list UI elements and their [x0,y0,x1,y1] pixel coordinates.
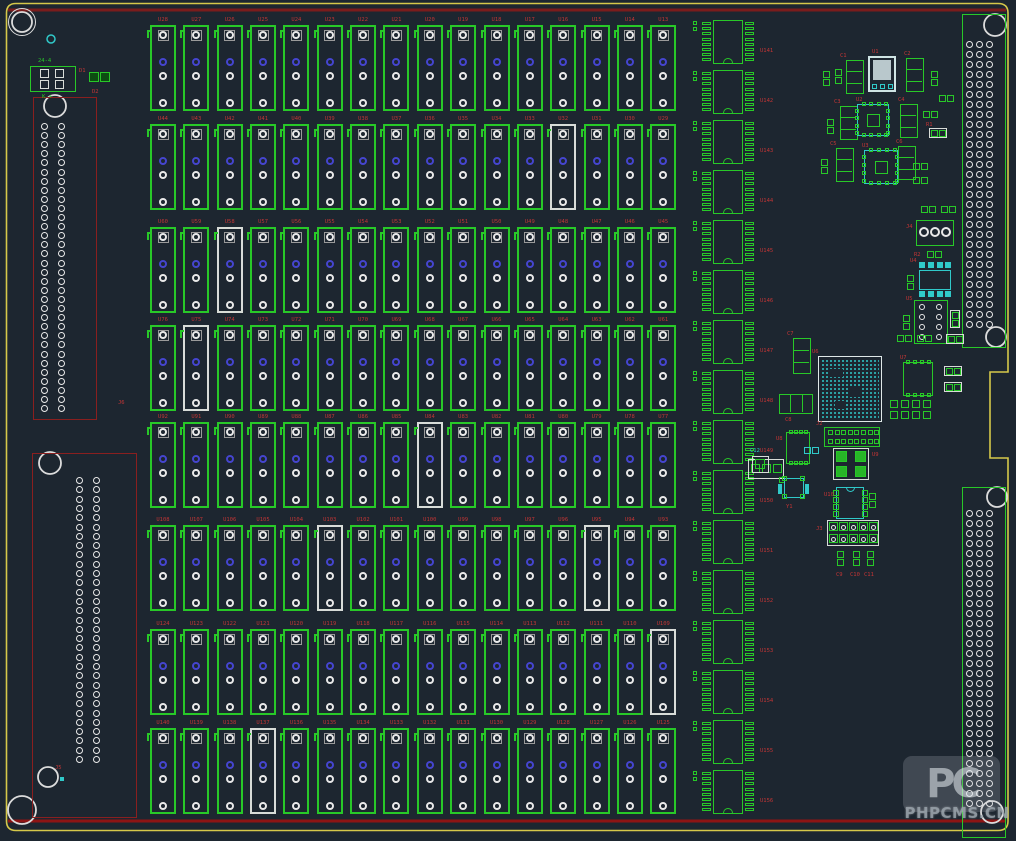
relay-footprint[interactable] [350,25,376,111]
relay-footprint[interactable] [350,525,376,611]
ic-footprint[interactable] [700,420,758,464]
pad-hole [966,740,973,747]
relay-footprint[interactable] [417,124,443,210]
relay-footprint[interactable] [250,629,276,715]
pad-hole [392,455,400,463]
chip-component[interactable] [926,250,944,260]
relay-footprint[interactable] [417,728,443,814]
relay-footprint[interactable] [183,124,209,210]
connector-footprint[interactable] [824,427,880,447]
pad-hole [659,260,667,268]
chip-component[interactable] [944,366,962,376]
pin1-mark-icon [147,232,151,240]
pad-hole [976,530,983,537]
pad-smd [693,571,697,575]
pad-hole [559,358,567,366]
crystal-footprint[interactable] [784,478,804,498]
relay-footprint[interactable] [383,728,409,814]
relay-footprint[interactable] [484,629,510,715]
relay-footprint[interactable] [217,124,243,210]
pad-hole [986,141,993,148]
relay-footprint[interactable] [617,124,643,210]
relay-footprint[interactable] [450,325,476,411]
pad-hole [659,761,667,769]
relay-designator: U129 [514,720,546,726]
pad-hole [526,428,534,436]
ic-footprint[interactable] [700,220,758,264]
relay-footprint[interactable] [550,422,576,508]
ic-footprint[interactable] [700,270,758,314]
soic8-footprint[interactable] [918,262,954,298]
relay-footprint[interactable] [417,325,443,411]
chip-component[interactable] [930,70,940,88]
pad-hole [593,301,601,309]
pad-hole [966,221,973,228]
relay-footprint[interactable] [617,422,643,508]
pin1-mark-icon [314,129,318,137]
pin1-mark-icon [614,733,618,741]
pad-hole [966,241,973,248]
relay-footprint[interactable] [617,227,643,313]
pad-hole [526,274,534,282]
ic-footprint[interactable] [700,20,758,64]
relay-designator: U113 [514,621,546,627]
relay-footprint[interactable] [417,25,443,111]
pad-hole [459,99,467,107]
relay-footprint[interactable] [450,25,476,111]
relay-footprint[interactable] [517,629,543,715]
opto-footprint[interactable] [833,448,869,480]
relay-footprint[interactable] [217,227,243,313]
relay-footprint[interactable] [617,629,643,715]
pad-hole [966,640,973,647]
relay-footprint[interactable] [317,422,343,508]
relay-footprint[interactable] [183,25,209,111]
ic-pad [702,258,711,261]
pad-smd [862,155,866,159]
ic-pad [702,303,711,306]
relay-footprint[interactable] [150,422,176,508]
pad-hole [226,558,234,566]
shape [841,117,856,118]
qfn-footprint[interactable] [864,150,898,184]
pad-smd [869,148,873,152]
pad-smd [928,262,934,268]
power-header-footprint[interactable] [30,66,76,92]
capacitor-footprint[interactable] [900,104,918,138]
chip-component[interactable] [820,158,830,176]
relay-footprint[interactable] [350,325,376,411]
pad-smd [880,84,885,89]
relay-footprint[interactable] [584,227,610,313]
pad-hole [76,496,83,503]
relay-footprint[interactable] [250,325,276,411]
pad-smd [907,275,914,282]
pad-hole [93,617,100,624]
relay-footprint[interactable] [550,124,576,210]
relay-footprint[interactable] [517,25,543,111]
jumper-connector[interactable] [916,220,954,246]
shape [841,129,856,130]
relay-footprint[interactable] [584,325,610,411]
relay-footprint[interactable] [150,728,176,814]
relay-footprint[interactable] [250,25,276,111]
relay-footprint[interactable] [584,124,610,210]
pad-array[interactable] [890,400,934,422]
relay-footprint[interactable] [550,629,576,715]
pad-hole [526,72,534,80]
chip-component[interactable] [950,310,960,328]
relay-footprint[interactable] [183,629,209,715]
dip8-footprint[interactable] [836,487,864,519]
relay-footprint[interactable] [484,25,510,111]
relay-footprint[interactable] [617,728,643,814]
relay-footprint[interactable] [650,325,676,411]
relay-footprint[interactable] [283,525,309,611]
ic-footprint[interactable] [700,570,758,614]
relay-footprint[interactable] [283,728,309,814]
chip-component[interactable] [902,314,912,332]
pin1-mark-icon [414,634,418,642]
chip-component[interactable] [866,550,876,568]
ic-footprint[interactable] [700,520,758,564]
ic-pad [745,243,754,246]
relay-footprint[interactable] [183,325,209,411]
chip-component[interactable] [752,456,769,473]
relay-footprint[interactable] [317,525,343,611]
soic8-footprint[interactable] [903,362,933,396]
relay-footprint[interactable] [650,728,676,814]
chip-component[interactable] [938,94,956,104]
pad-hole [259,802,267,810]
pad-smd [869,133,873,137]
relay-footprint[interactable] [650,25,676,111]
pad-smd [835,69,842,76]
chip-component[interactable] [906,274,916,292]
ic-footprint[interactable] [700,770,758,814]
pad-hole [76,747,83,754]
relay-footprint[interactable] [517,124,543,210]
relay-footprint[interactable] [417,422,443,508]
pad-hole [459,496,467,504]
relay-footprint[interactable] [383,25,409,111]
pin1-mark-icon [581,427,585,435]
pad-hole [493,331,501,339]
ic-footprint[interactable] [700,620,758,664]
pad-hole [966,301,973,308]
relay-footprint[interactable] [217,25,243,111]
relay-footprint[interactable] [617,325,643,411]
relay-footprint[interactable] [217,422,243,508]
pad-hole [159,775,167,783]
relay-footprint[interactable] [317,728,343,814]
chip-component[interactable] [852,550,862,568]
relay-footprint[interactable] [517,525,543,611]
pad-hole [159,130,167,138]
ref-label: J3 [816,526,823,532]
relay-footprint[interactable] [250,124,276,210]
chip-component[interactable] [912,162,930,172]
ic-pad [702,422,711,425]
relay-footprint[interactable] [217,629,243,715]
pad-hole [359,358,367,366]
relay-footprint[interactable] [617,525,643,611]
pad-hole [919,304,925,310]
ic-designator: U143 [760,148,773,154]
ic-pad [745,543,754,546]
relay-footprint[interactable] [250,525,276,611]
edge-connector-left[interactable] [32,453,137,818]
relay-footprint[interactable] [383,422,409,508]
relay-footprint[interactable] [150,525,176,611]
ic-pad [702,732,711,735]
shape [901,115,916,116]
pin1-mark-icon [447,427,451,435]
relay-footprint[interactable] [350,629,376,715]
chip-component[interactable] [940,205,958,215]
ic-pad [745,148,754,151]
pad-smd [848,430,853,435]
pin1-mark-icon [214,330,218,338]
pad-hole [986,71,993,78]
chip-component[interactable] [822,70,832,88]
ic-pad [702,227,711,230]
pad-hole [226,662,234,670]
ic-pad [702,493,711,496]
relay-footprint[interactable] [650,227,676,313]
relay-footprint[interactable] [283,629,309,715]
pad-smd [913,360,917,364]
relay-footprint[interactable] [383,525,409,611]
relay-footprint[interactable] [550,525,576,611]
relay-footprint[interactable] [550,25,576,111]
pad-hole [76,570,83,577]
relay-footprint[interactable] [484,124,510,210]
ic-pad [702,548,711,551]
pin1-mark-icon [414,427,418,435]
relay-footprint[interactable] [217,525,243,611]
relay-footprint[interactable] [584,728,610,814]
ic-footprint[interactable] [700,720,758,764]
ic-footprint[interactable] [700,320,758,364]
ic-footprint[interactable] [700,370,758,414]
relay-footprint[interactable] [484,227,510,313]
relay-footprint[interactable] [217,728,243,814]
relay-footprint[interactable] [584,629,610,715]
ic-pad [745,143,754,146]
relay-footprint[interactable] [383,227,409,313]
relay-footprint[interactable] [150,629,176,715]
pad-hole [93,663,100,670]
relay-footprint[interactable] [250,227,276,313]
relay-footprint[interactable] [283,124,309,210]
relay-footprint[interactable] [517,325,543,411]
pad-hole [359,198,367,206]
relay-footprint[interactable] [450,629,476,715]
relay-footprint[interactable] [150,124,176,210]
relay-footprint[interactable] [417,525,443,611]
relay-footprint[interactable] [417,227,443,313]
ref-label: U5 [906,296,913,302]
relay-footprint[interactable] [584,25,610,111]
relay-footprint[interactable] [317,124,343,210]
pin1-mark-icon [447,30,451,38]
relay-footprint[interactable] [584,525,610,611]
relay-footprint[interactable] [617,25,643,111]
pad-hole [986,680,993,687]
relay-footprint[interactable] [350,728,376,814]
pad-hole [392,372,400,380]
pad-smd [848,439,853,444]
relay-designator: U95 [581,517,613,523]
pad-hole [831,525,836,530]
relay-footprint[interactable] [317,25,343,111]
ic-pad [745,677,754,680]
relay-footprint[interactable] [517,227,543,313]
regulator-footprint[interactable] [868,56,896,92]
relay-footprint[interactable] [283,25,309,111]
relay-footprint[interactable] [584,422,610,508]
pad-hole [593,455,601,463]
ic-pad [702,438,711,441]
relay-footprint[interactable] [383,325,409,411]
ic-pad [745,572,754,575]
relay-footprint[interactable] [450,227,476,313]
pad-hole [76,691,83,698]
relay-footprint[interactable] [650,422,676,508]
relay-footprint[interactable] [550,227,576,313]
ic-footprint[interactable] [700,120,758,164]
relay-footprint[interactable] [150,25,176,111]
chip-component[interactable] [920,205,938,215]
ic-pad [745,58,754,61]
relay-footprint[interactable] [383,124,409,210]
relay-footprint[interactable] [283,227,309,313]
ic-pad [702,158,711,161]
relay-footprint[interactable] [484,422,510,508]
chip-component[interactable] [916,334,934,344]
relay-footprint[interactable] [183,525,209,611]
pad-smd [89,72,99,82]
pad-hole [326,58,334,66]
pad-hole [326,662,334,670]
relay-footprint[interactable] [450,422,476,508]
relay-footprint[interactable] [484,325,510,411]
chip-component[interactable] [929,128,947,138]
relay-footprint[interactable] [217,325,243,411]
relay-footprint[interactable] [650,525,676,611]
relay-footprint[interactable] [317,629,343,715]
capacitor-footprint[interactable] [846,60,864,94]
relay-designator: U86 [347,414,379,420]
pad-hole [493,58,501,66]
capacitor-footprint[interactable] [779,394,813,414]
relay-designator: U94 [614,517,646,523]
relay-footprint[interactable] [350,227,376,313]
ic-footprint[interactable] [700,170,758,214]
pad-hole [259,301,267,309]
relay-footprint[interactable] [283,325,309,411]
chip-component[interactable] [912,176,930,186]
chip-component[interactable] [896,334,914,344]
relay-footprint[interactable] [350,124,376,210]
relay-footprint[interactable] [650,629,676,715]
relay-footprint[interactable] [317,325,343,411]
relay-footprint[interactable] [650,124,676,210]
relay-footprint[interactable] [517,422,543,508]
pad-smd [100,72,110,82]
ic-pad [745,743,754,746]
ic-pad [745,288,754,291]
pin1-mark-icon [547,634,551,642]
relay-footprint[interactable] [450,525,476,611]
qfn-footprint[interactable] [857,104,889,136]
ic-footprint[interactable] [700,70,758,114]
pad-hole [526,662,534,670]
pin-header-footprint[interactable] [827,520,879,546]
pad-hole [559,455,567,463]
relay-footprint[interactable] [150,227,176,313]
pad-hole [986,710,993,717]
chip-component[interactable] [946,334,964,344]
led-footprint[interactable] [88,71,112,85]
pad-smd [693,171,697,175]
pad-hole [226,358,234,366]
capacitor-footprint[interactable] [836,148,854,182]
chip-component[interactable] [803,446,821,456]
relay-footprint[interactable] [250,728,276,814]
relay-footprint[interactable] [183,422,209,508]
relay-footprint[interactable] [183,728,209,814]
relay-footprint[interactable] [283,422,309,508]
relay-designator: U85 [380,414,412,420]
relay-footprint[interactable] [417,629,443,715]
chip-component[interactable] [922,110,940,120]
pad-hole [259,58,267,66]
bga-footprint[interactable] [818,356,882,422]
pad-hole [159,358,167,366]
relay-footprint[interactable] [250,422,276,508]
relay-footprint[interactable] [383,629,409,715]
chip-component[interactable] [834,68,844,86]
relay-footprint[interactable] [350,422,376,508]
relay-footprint[interactable] [450,124,476,210]
chip-component[interactable] [836,550,846,568]
pin1-mark-icon [547,427,551,435]
ic-pad [702,408,711,411]
relay-footprint[interactable] [484,525,510,611]
pad-hole [192,274,200,282]
chip-component[interactable] [826,118,836,136]
pad-hole [559,676,567,684]
relay-footprint[interactable] [150,325,176,411]
relay-footprint[interactable] [450,728,476,814]
capacitor-footprint[interactable] [793,338,811,374]
ic-footprint[interactable] [700,670,758,714]
chip-component[interactable] [868,492,878,510]
pad-hole [76,477,83,484]
pad-hole [326,171,334,179]
relay-footprint[interactable] [550,728,576,814]
relay-footprint[interactable] [550,325,576,411]
relay-footprint[interactable] [517,728,543,814]
capacitor-footprint[interactable] [906,58,924,92]
relay-footprint[interactable] [317,227,343,313]
ic-pad [745,103,754,106]
relay-footprint[interactable] [183,227,209,313]
chip-component[interactable] [944,382,962,392]
relay-footprint[interactable] [484,728,510,814]
